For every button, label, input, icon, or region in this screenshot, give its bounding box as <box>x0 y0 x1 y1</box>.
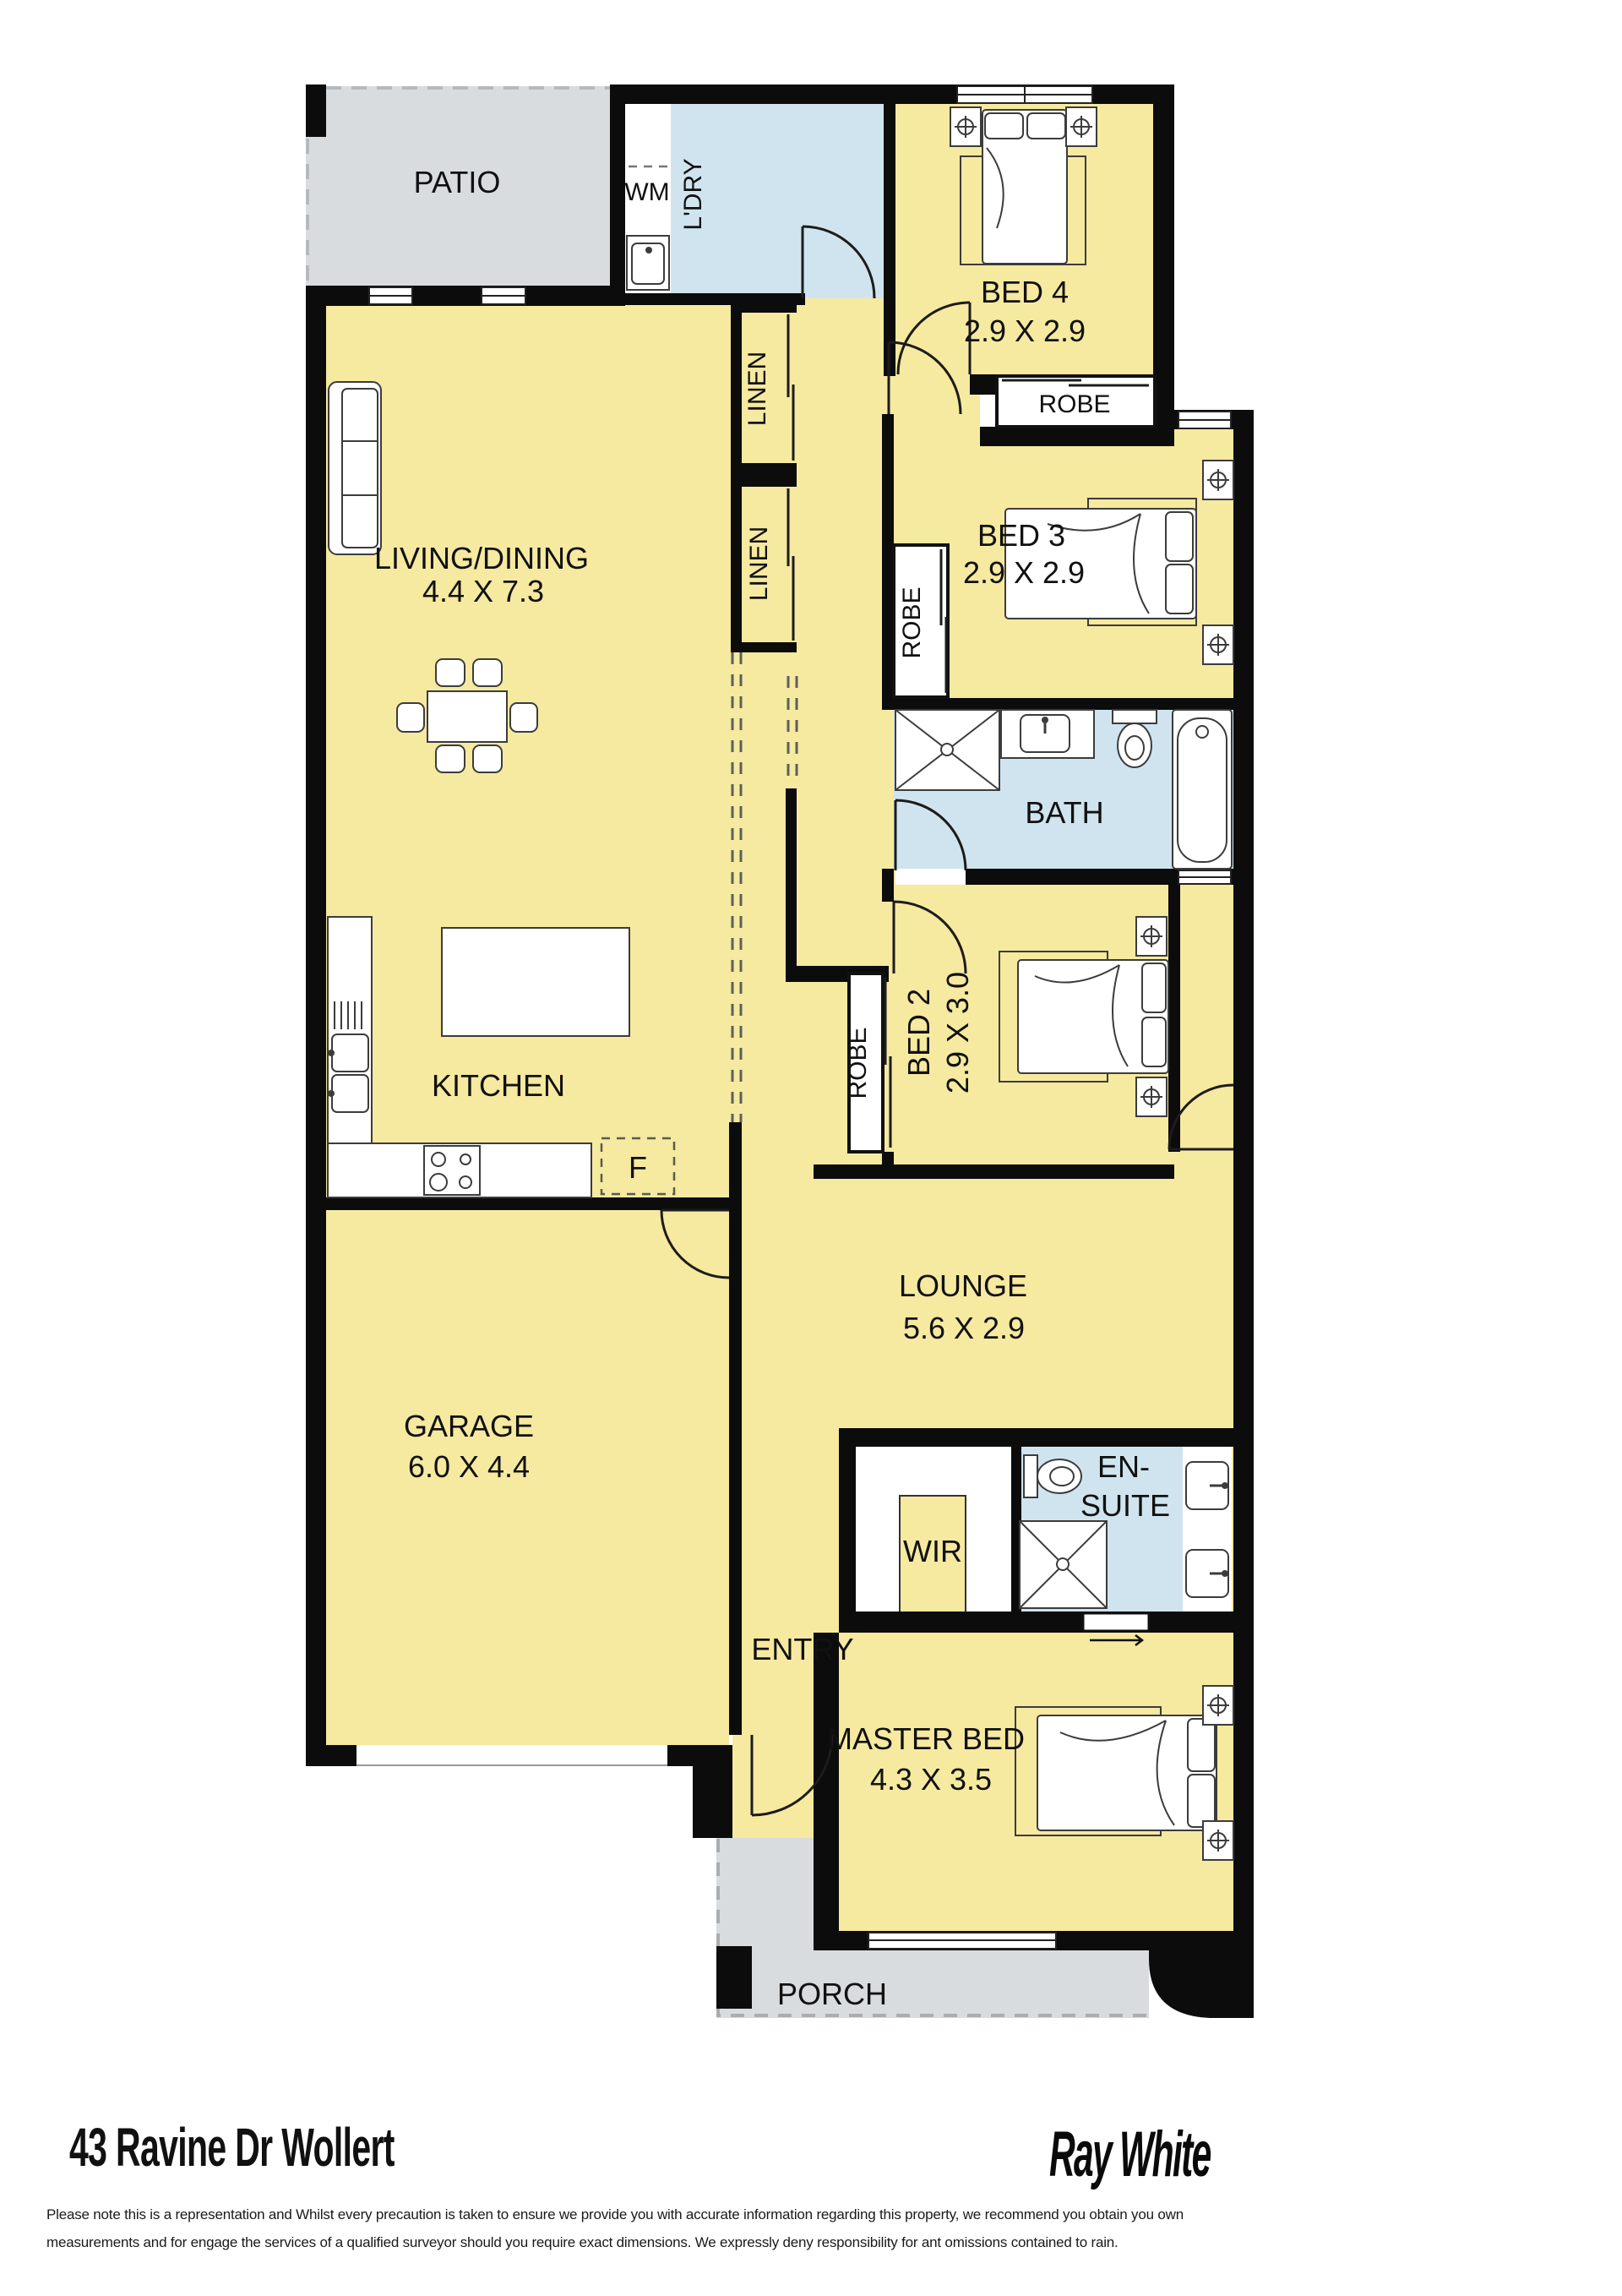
window-master <box>868 1933 1056 1949</box>
wall-kitchen-se-stub <box>729 1122 742 1210</box>
wall-patio-post <box>306 85 326 137</box>
room-size-garage: 6.0 X 4.4 <box>408 1449 530 1484</box>
wall-garage-sw <box>306 1745 357 1766</box>
wall-bed3-west <box>882 414 894 700</box>
room-label-porch: PORCH <box>777 1977 887 2011</box>
floorplan-page: PATIO WM L'DRY BED 4 2.9 X 2.9 ROBE LINE… <box>0 0 1622 2296</box>
window-bed3-north <box>1178 412 1231 428</box>
room-label-entry: ENTRY <box>751 1632 853 1666</box>
wall-bed4-south-stub <box>970 374 997 395</box>
wall-corner-rounded <box>1149 1950 1254 2018</box>
label-robe-bed3: ROBE <box>898 586 926 658</box>
wall-master-west <box>814 1633 839 1950</box>
room-size-lounge: 5.6 X 2.9 <box>903 1311 1025 1345</box>
disclaimer-line-1: Please note this is a representation and… <box>46 2201 1184 2228</box>
room-size-living: 4.4 X 7.3 <box>422 574 544 608</box>
wall-bed3-bath <box>882 698 1233 710</box>
ensuite-cavity-slider <box>1083 1613 1149 1645</box>
room-label-bed2: BED 2 <box>901 989 936 1077</box>
disclaimer: Please note this is a representation and… <box>46 2201 1184 2256</box>
room-size-bed3: 2.9 X 2.9 <box>963 555 1085 590</box>
ensuite-vanity-floor <box>1183 1447 1232 1612</box>
shower-ensuite <box>1020 1521 1107 1608</box>
property-address: 43 Ravine Dr Wollert <box>69 2116 395 2179</box>
wall-bed2-sw-stub <box>882 1152 894 1164</box>
wall-garage-door-jamb <box>667 1745 695 1766</box>
wall-west <box>306 286 326 1766</box>
wall-garage-se-post <box>693 1745 732 1838</box>
room-label-lounge: LOUNGE <box>899 1268 1027 1303</box>
wall-ensuite-south <box>839 1612 1233 1633</box>
ray-white-logo: Ray White <box>1049 2118 1211 2191</box>
window-living-1 <box>369 287 412 304</box>
room-label-bed3: BED 3 <box>977 518 1065 553</box>
room-label-ensuite-2: SUITE <box>1080 1488 1170 1523</box>
room-label-living: LIVING/DINING <box>374 541 589 575</box>
wall-bed2-east <box>1168 885 1180 1152</box>
label-fridge: F <box>629 1150 647 1185</box>
room-label-kitchen: KITCHEN <box>432 1068 565 1103</box>
room-label-bed4: BED 4 <box>981 275 1069 309</box>
wall-wir-north <box>839 1428 1233 1447</box>
room-label-wir: WIR <box>903 1534 962 1568</box>
shower-bath <box>895 710 999 790</box>
wall-linen-top <box>731 303 797 313</box>
room-size-bed2: 2.9 X 3.0 <box>940 972 975 1093</box>
wall-laundry-east <box>884 104 895 376</box>
room-label-laundry: L'DRY <box>679 158 707 230</box>
room-size-bed4: 2.9 X 2.9 <box>964 314 1086 348</box>
wall-lounge-north <box>814 1164 1174 1179</box>
bathtub <box>1173 710 1232 869</box>
wall-bath-south-a <box>882 869 894 885</box>
wall-garage-east <box>729 1210 742 1735</box>
label-linen-top: LINEN <box>743 352 771 426</box>
wall-hall-east <box>786 788 797 968</box>
wall-wir-west <box>839 1447 856 1633</box>
window-living-2 <box>482 287 525 304</box>
wall-wm-west <box>610 104 625 300</box>
disclaimer-line-2: measurements and for engage the services… <box>46 2228 1184 2256</box>
room-label-ensuite-1: EN- <box>1097 1449 1150 1484</box>
label-wm: WM <box>624 178 669 206</box>
window-bed4 <box>957 86 1092 103</box>
wall-east <box>1233 410 1254 1950</box>
window-bath <box>1178 870 1231 884</box>
room-size-master: 4.3 X 3.5 <box>870 1762 992 1797</box>
garage-door-opening <box>357 1745 667 1766</box>
bath-vanity <box>1001 710 1094 758</box>
room-label-master: MASTER BED <box>827 1721 1025 1756</box>
wall-porch-post <box>716 1946 752 2009</box>
wall-under-robe4 <box>980 427 1174 446</box>
label-linen-bottom: LINEN <box>745 526 773 601</box>
kitchen-island <box>442 928 629 1036</box>
label-robe-bed4: ROBE <box>1038 390 1110 418</box>
label-robe-bed2: ROBE <box>844 1027 872 1099</box>
room-label-bath: BATH <box>1025 795 1103 830</box>
wall-bed2-west-stub <box>882 885 894 902</box>
room-label-patio: PATIO <box>414 165 501 199</box>
room-label-garage: GARAGE <box>404 1409 534 1443</box>
sofa <box>329 382 381 554</box>
wall-linen-mid <box>731 463 797 487</box>
wall-kitchen-south <box>326 1197 742 1210</box>
wall-linen-bottom <box>731 642 797 652</box>
wall-living-north <box>306 286 625 306</box>
floorplan-drawing: PATIO WM L'DRY BED 4 2.9 X 2.9 ROBE LINE… <box>0 0 1622 2296</box>
